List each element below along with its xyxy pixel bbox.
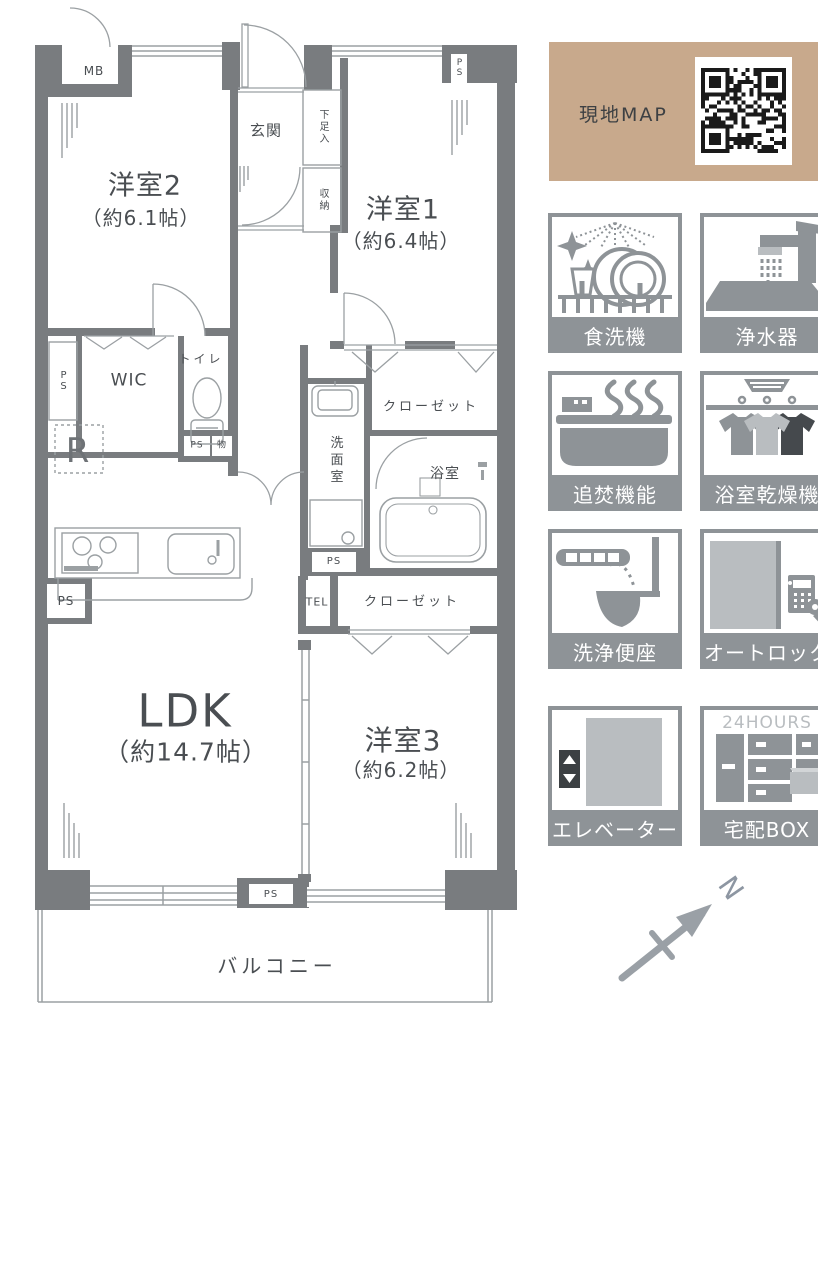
label-western2-size: （約6.1帖） [82,208,201,228]
listing-image: N MB 洋室2 （約6.1帖） 玄関 下足入 収納 洋室1 （約6.4帖） P… [0,0,818,1280]
label-ps-bath: PS [327,557,341,567]
label-ps-mid: PS [190,442,203,451]
label-western1: 洋室1 [366,197,440,224]
amenity-label: 浄水器 [700,317,818,353]
amenity-dishwasher: 食洗機 [548,213,682,353]
qr-code [695,57,792,165]
sliding-partition [302,650,309,874]
auto-lock-icon [704,535,818,633]
amenity-water-purifier: 浄水器 [700,213,818,353]
amenity-washlet: 洗浄便座 [548,529,682,669]
amenity-elevator: エレベーター [548,706,682,846]
label-ps-left: PS [58,370,68,392]
qr-code-pattern [701,68,786,153]
dishwasher-icon [552,219,678,317]
storage-boxes [49,90,341,473]
site-map-title: 現地MAP [579,100,668,127]
amenity-label: 浴室乾燥機 [700,475,818,511]
amenity-bathroom-dryer: 浴室乾燥機 [700,371,818,511]
label-bathroom: 浴室 [430,467,460,481]
elevator-icon [552,712,678,810]
compass: N [622,870,750,978]
label-meter-box: MB [84,65,105,77]
sink [168,534,234,574]
amenity-label: 食洗機 [548,317,682,353]
label-western3-size: （約6.2帖） [342,760,461,780]
label-closet-lower: クローゼット [364,596,460,609]
label-refrigerator: R [66,434,91,468]
label-western2: 洋室2 [108,173,182,200]
compass-north-label: N [711,870,750,906]
amenity-label: 追焚機能 [548,475,682,511]
bathroom-dryer-icon [704,377,818,475]
washlet-icon [552,535,678,633]
amenity-label: 宅配BOX [700,810,818,846]
water-purifier-icon [704,219,818,317]
amenity-reheating: 追焚機能 [548,371,682,511]
label-ldk: LDK [137,689,232,734]
washbasin [312,381,358,416]
label-telephone: TEL [306,597,329,608]
label-closet-upper: クローゼット [383,401,479,414]
label-ldk-size: （約14.7帖） [104,740,268,765]
label-storage: 収納 [317,188,327,212]
site-map-panel: 現地MAP [549,42,818,181]
amenity-delivery-box: 24HOURS 宅配BOX [700,706,818,846]
label-shoe-cabinet: 下足入 [317,109,327,145]
label-ps-bottom: PS [264,890,278,900]
washing-machine-pan [310,500,362,546]
key-icon [807,599,818,629]
amenity-label: エレベーター [548,810,682,846]
bath-reheating-icon [552,377,678,475]
label-western3: 洋室3 [365,727,442,755]
label-ps-top-right: PS [455,58,464,78]
label-wic: WIC [111,373,148,390]
delivery-box-icon: 24HOURS [704,712,818,810]
amenity-label: 洗浄便座 [548,633,682,669]
label-small-storage: 物 [217,442,227,451]
amenity-label: オートロック [700,633,818,669]
label-toilet: トイレ [178,353,223,365]
label-washroom: 洗面室 [329,436,342,487]
label-ps-kitchen: PS [58,595,75,607]
delivery-box-24hours-label: 24HOURS [722,713,812,733]
label-entrance: 玄関 [250,124,282,139]
label-western1-size: （約6.4帖） [342,231,461,251]
amenity-auto-lock: オートロック [700,529,818,669]
label-balcony: バルコニー [217,956,337,976]
